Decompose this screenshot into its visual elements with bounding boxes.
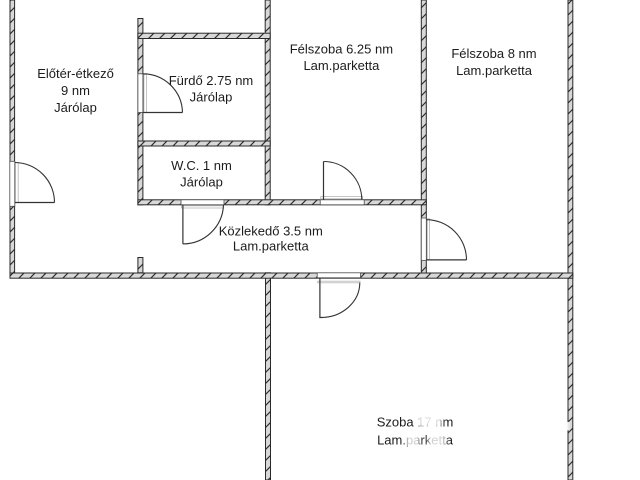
svg-text:Közlekedő 3.5 nm: Közlekedő 3.5 nm [219,224,323,239]
svg-text:Járólap: Járólap [180,175,223,190]
svg-text:Félszoba 6.25 nm: Félszoba 6.25 nm [290,42,393,57]
svg-text:Fürdő 2.75 nm: Fürdő 2.75 nm [169,73,254,88]
svg-text:Járólap: Járólap [54,100,97,115]
svg-text:Lam.parketta: Lam.parketta [303,58,380,73]
svg-text:Lam.parketta: Lam.parketta [456,63,533,78]
svg-text:W.C. 1 nm: W.C. 1 nm [171,158,232,173]
svg-text:Félszoba 8 nm: Félszoba 8 nm [451,46,536,61]
svg-text:Lam.parketta: Lam.parketta [233,239,310,254]
svg-text:Járólap: Járólap [190,90,233,105]
svg-text:Előtér-étkező: Előtér-étkező [37,66,114,81]
svg-text:9 nm: 9 nm [61,83,90,98]
